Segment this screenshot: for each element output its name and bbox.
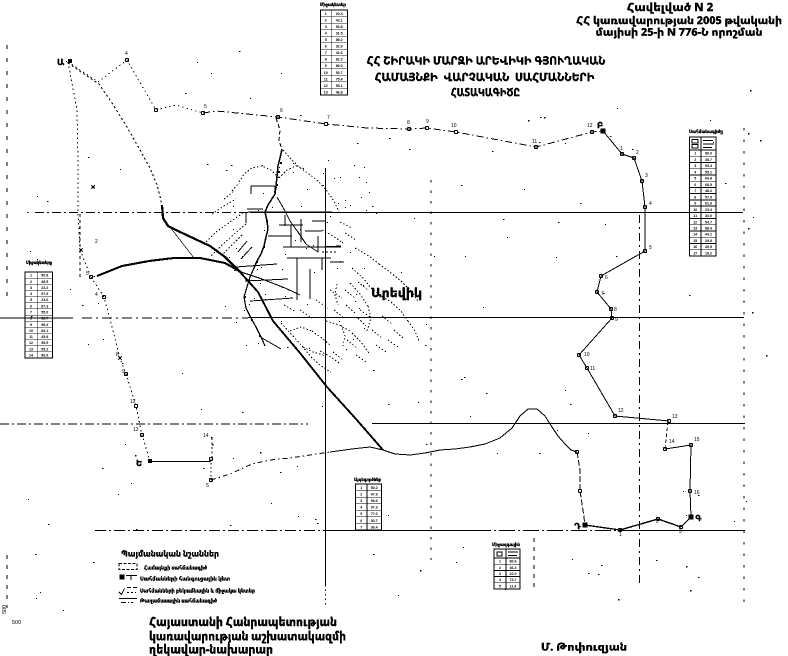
svg-text:89.2: 89.2 [336,38,343,42]
svg-text:82.3: 82.3 [336,58,343,62]
svg-text:10: 10 [451,123,457,129]
svg-text:12: 12 [618,408,624,414]
svg-text:12: 12 [587,123,593,129]
svg-text:11: 11 [532,139,537,145]
svg-text:48.5: 48.5 [41,280,48,284]
svg-text:1: 1 [499,560,501,564]
svg-text:97.9: 97.9 [41,292,48,296]
svg-text:64.8: 64.8 [705,177,712,181]
svg-text:42.6: 42.6 [336,51,343,55]
svg-text:10: 10 [693,208,697,212]
svg-text:1: 1 [325,12,327,16]
svg-text:93.4: 93.4 [705,164,712,168]
svg-text:5: 5 [325,38,327,42]
svg-text:50.7: 50.7 [371,519,378,523]
svg-text:1: 1 [360,486,362,490]
svg-text:13: 13 [133,427,139,433]
svg-text:20.4: 20.4 [336,12,343,16]
svg-text:2: 2 [499,566,501,570]
svg-text:12: 12 [324,84,328,88]
svg-text:4: 4 [694,170,696,174]
svg-text:9: 9 [694,202,696,206]
svg-text:4: 4 [499,578,501,582]
svg-text:80.0: 80.0 [336,64,343,68]
svg-text:6: 6 [30,304,32,308]
svg-text:22.0: 22.0 [510,572,517,576]
svg-text:50.2: 50.2 [371,486,378,490]
svg-text:4: 4 [95,292,98,298]
svg-text:8: 8 [614,307,617,313]
svg-text:7: 7 [327,115,330,121]
svg-text:93.8: 93.8 [336,25,343,29]
svg-text:3: 3 [30,286,32,290]
svg-text:9: 9 [325,64,327,68]
svg-text:55.5: 55.5 [41,341,48,345]
svg-text:45.5: 45.5 [705,245,712,249]
svg-text:55.0: 55.0 [41,311,48,315]
svg-text:55.1: 55.1 [336,84,343,88]
svg-text:23.3: 23.3 [705,208,712,212]
svg-text:57.9: 57.9 [705,195,712,199]
svg-text:3: 3 [360,499,362,503]
svg-text:31.5: 31.5 [336,32,343,36]
svg-text:14: 14 [693,233,697,237]
svg-text:50.8: 50.8 [41,274,48,278]
svg-text:6: 6 [694,183,696,187]
svg-text:7: 7 [694,189,696,193]
svg-text:11: 11 [590,366,595,372]
svg-text:87.3: 87.3 [41,304,48,308]
svg-text:14: 14 [203,433,209,439]
svg-text:36.4: 36.4 [371,525,378,529]
svg-text:8: 8 [30,317,32,321]
svg-text:56.9: 56.9 [41,354,48,358]
svg-text:5: 5 [499,584,501,588]
svg-text:54.7: 54.7 [705,220,712,224]
svg-text:61.6: 61.6 [705,202,712,206]
svg-text:19.2: 19.2 [705,251,712,255]
svg-text:12: 12 [29,341,33,345]
svg-text:47.9: 47.9 [371,493,378,497]
svg-text:44.1: 44.1 [705,233,712,237]
svg-text:3: 3 [645,173,648,179]
svg-text:11: 11 [693,214,697,218]
svg-text:88.4: 88.4 [705,227,712,231]
svg-text:22.2: 22.2 [41,286,48,290]
svg-text:5: 5 [206,483,209,489]
svg-text:7: 7 [30,311,32,315]
svg-text:4: 4 [125,51,128,57]
svg-text:9: 9 [30,323,32,327]
svg-text:73.7: 73.7 [510,578,517,582]
svg-text:2: 2 [360,493,362,497]
svg-text:2: 2 [694,158,696,162]
svg-text:14: 14 [29,354,33,358]
svg-text:1: 1 [30,274,32,278]
svg-text:29.8: 29.8 [705,239,712,243]
svg-text:80.0: 80.0 [705,152,712,156]
svg-text:35.7: 35.7 [705,158,712,162]
svg-text:6: 6 [280,108,283,114]
svg-text:8: 8 [116,352,119,358]
svg-text:4: 4 [360,506,362,510]
svg-text:15: 15 [693,239,697,243]
svg-text:16: 16 [693,245,697,249]
svg-text:13: 13 [324,90,328,94]
svg-text:7: 7 [325,51,327,55]
svg-text:8: 8 [325,58,327,62]
svg-text:7: 7 [360,525,362,529]
svg-text:5: 5 [649,245,652,251]
svg-text:2: 2 [30,280,32,284]
svg-text:1: 1 [620,146,623,152]
svg-text:33.0: 33.0 [705,214,712,218]
svg-text:5: 5 [204,104,207,110]
svg-text:3: 3 [694,164,696,168]
svg-text:10: 10 [324,71,328,75]
svg-text:14: 14 [669,439,675,445]
svg-text:5: 5 [694,177,696,181]
svg-text:6: 6 [360,519,362,523]
svg-text:93.6: 93.6 [371,499,378,503]
svg-text:32.9: 32.9 [336,45,343,49]
svg-text:3: 3 [499,572,501,576]
svg-text:2: 2 [325,18,327,22]
svg-text:4: 4 [30,292,32,296]
svg-text:500: 500 [12,620,21,626]
svg-text:5: 5 [30,298,32,302]
svg-text:75.4: 75.4 [336,77,343,81]
svg-text:4: 4 [325,32,327,36]
svg-text:80.6: 80.6 [510,560,517,564]
svg-text:45.8: 45.8 [41,335,48,339]
svg-text:42.1: 42.1 [336,18,343,22]
svg-text:3: 3 [325,25,327,29]
svg-text:97.3: 97.3 [371,506,378,510]
svg-text:23.6: 23.6 [41,298,48,302]
svg-text:5: 5 [86,271,89,277]
svg-text:9: 9 [122,369,125,375]
svg-text:9: 9 [426,119,429,125]
svg-text:6: 6 [605,275,608,281]
svg-text:9: 9 [615,317,618,323]
svg-text:6: 6 [325,45,327,49]
svg-text:11.4: 11.4 [510,584,517,588]
svg-text:8: 8 [407,120,410,126]
svg-text:1: 1 [619,532,622,538]
svg-text:1: 1 [694,152,696,156]
svg-text:17: 17 [693,251,697,255]
svg-text:13: 13 [672,414,678,420]
svg-text:2: 2 [656,519,659,525]
svg-text:48.2: 48.2 [705,189,712,193]
svg-text:77.0: 77.0 [371,512,378,516]
svg-text:13: 13 [29,347,33,351]
svg-text:12: 12 [693,220,697,224]
svg-text:88.7: 88.7 [41,317,48,321]
svg-text:2: 2 [636,150,639,156]
svg-text:46.8: 46.8 [336,90,343,94]
svg-text:12: 12 [130,399,136,405]
svg-text:55.1: 55.1 [705,170,712,174]
svg-text:8: 8 [694,195,696,199]
svg-text:95.2: 95.2 [41,347,48,351]
svg-text:10: 10 [584,352,590,358]
svg-text:3: 3 [679,529,682,535]
svg-text:53.7: 53.7 [336,71,343,75]
svg-text:500: 500 [2,605,8,614]
svg-text:68.5: 68.5 [705,183,712,187]
svg-text:11: 11 [324,77,328,81]
svg-text:5: 5 [360,512,362,516]
svg-text:2: 2 [95,239,98,245]
svg-text:13: 13 [693,227,697,231]
svg-text:36.3: 36.3 [510,566,517,570]
svg-text:4: 4 [649,201,652,207]
svg-text:10: 10 [29,329,33,333]
svg-text:98.4: 98.4 [41,323,48,327]
svg-text:11: 11 [29,335,33,339]
svg-text:84.1: 84.1 [41,329,48,333]
svg-text:15: 15 [694,437,700,443]
